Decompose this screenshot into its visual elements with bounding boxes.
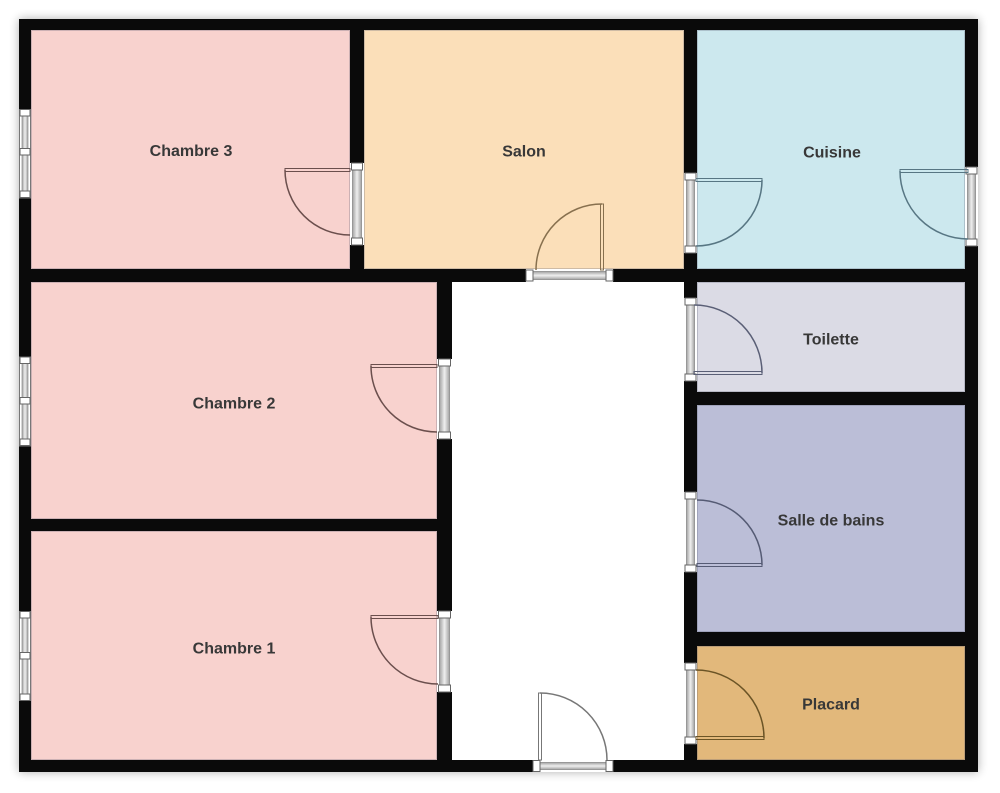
svg-text:Salle de bains: Salle de bains bbox=[778, 513, 885, 530]
svg-text:Placard: Placard bbox=[802, 697, 860, 714]
svg-text:Chambre 2: Chambre 2 bbox=[193, 396, 276, 413]
svg-text:Chambre 1: Chambre 1 bbox=[193, 641, 276, 658]
svg-text:Salon: Salon bbox=[502, 144, 546, 161]
svg-text:Chambre 3: Chambre 3 bbox=[150, 143, 233, 160]
svg-text:Cuisine: Cuisine bbox=[803, 145, 861, 162]
svg-text:Toilette: Toilette bbox=[803, 332, 859, 349]
